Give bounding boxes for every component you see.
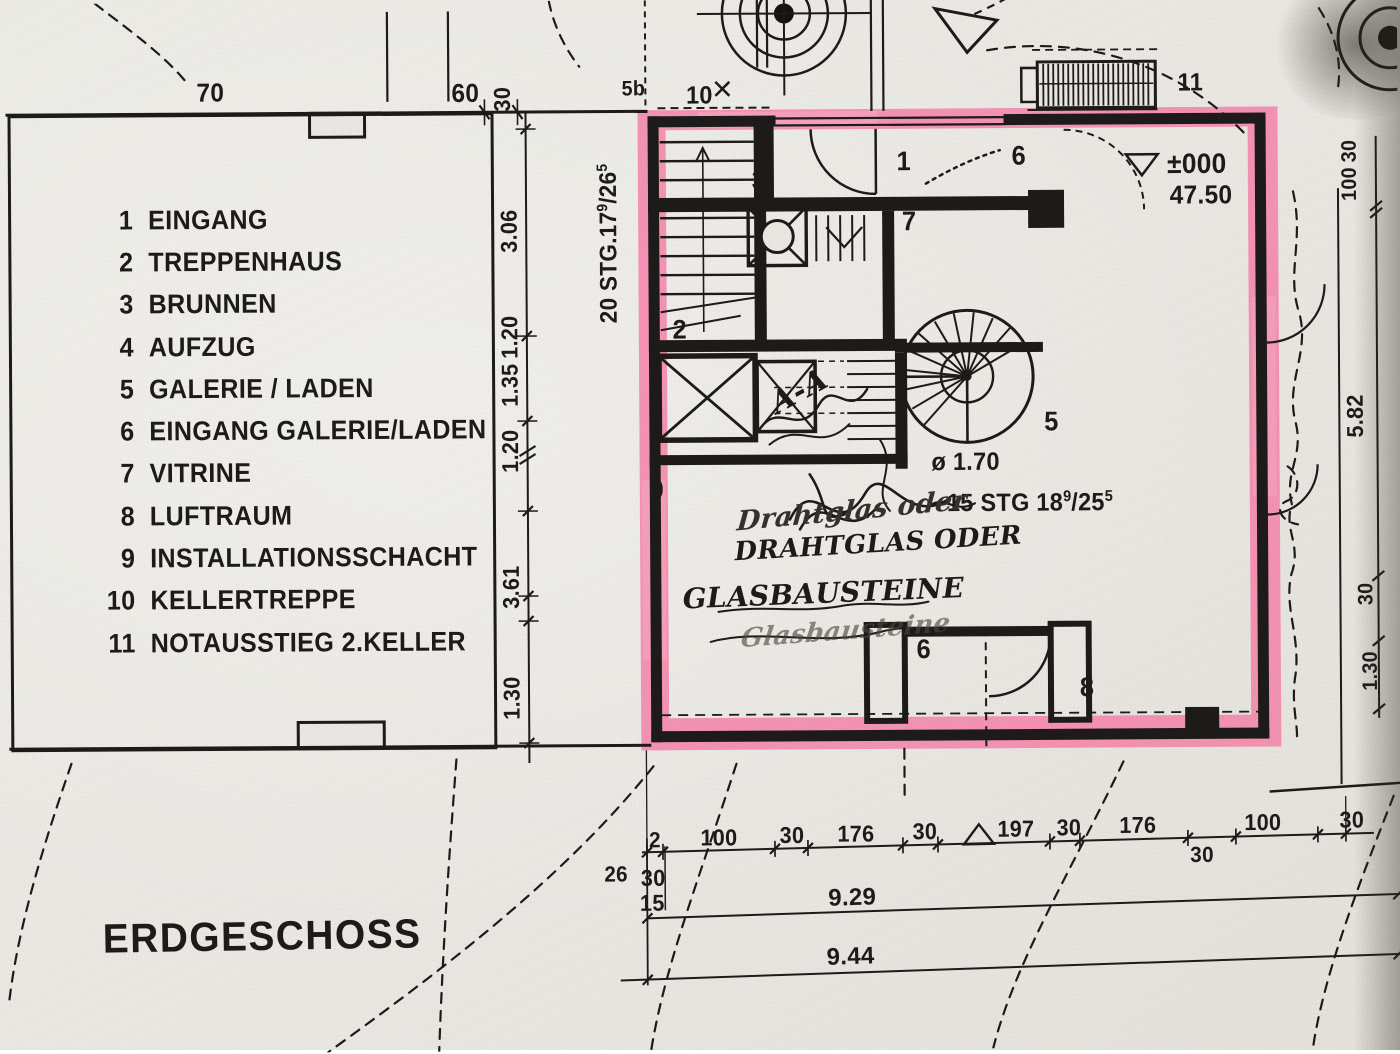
dim-bottom-100b: 100 (1244, 809, 1281, 836)
stair-winders (816, 215, 864, 261)
legend-item-number: 1 (94, 205, 133, 236)
level-marker-value: ±000 (1167, 148, 1227, 180)
legend-item-label: EINGANG GALERIE/LADEN (149, 414, 486, 447)
legend-item: 11 NOTAUSSTIEG 2.KELLER (97, 620, 488, 665)
room-label-3: 3 (752, 165, 767, 196)
dim-26: 26 (604, 861, 628, 887)
legend-item: 7 VITRINE (96, 451, 487, 496)
dim-top-60: 60 (451, 78, 479, 109)
legend-item-label: VITRINE (150, 458, 252, 490)
legend-item-number: 7 (96, 459, 135, 490)
dim-left-135: 1.35 (497, 363, 524, 406)
legend-item-number: 5 (95, 374, 134, 405)
dim-total-929: 9.29 (828, 883, 877, 912)
dim-15: 15 (640, 890, 665, 917)
legend-item-label: NOTAUSSTIEG 2.KELLER (151, 626, 466, 659)
level-marker-elevation: 47.50 (1170, 179, 1233, 210)
dim-top-30: 30 (489, 87, 516, 112)
survey-point-icon (696, 0, 871, 96)
dim-bottom-30a: 30 (780, 822, 805, 849)
page-title: ERDGESCHOSS (102, 910, 421, 962)
dim-total-944: 9.44 (826, 942, 875, 971)
dim-bottom-2: 2 (649, 827, 661, 853)
luftraum-dashed-line (661, 712, 1265, 716)
room-label-2: 2 (673, 315, 688, 346)
entrance-door-swing (811, 129, 876, 194)
legend-item-number: 4 (95, 332, 134, 363)
scan-edge-shadow (1354, 0, 1400, 1050)
dim-left-120a: 1.20 (496, 315, 523, 358)
scanned-floor-plan-sheet: 1 EINGANG 2 TREPPENHAUS 3 BRUNNEN 4 AUFZ… (0, 0, 1400, 1050)
room-label-1: 1 (896, 146, 911, 177)
legend-item: 2 TREPPENHAUS (94, 240, 485, 285)
room-label-11: 11 (1178, 68, 1204, 97)
main-staircase (660, 142, 755, 333)
dim-left-130: 1.30 (498, 676, 525, 719)
drawing-sheet: 1 EINGANG 2 TREPPENHAUS 3 BRUNNEN 4 AUFZ… (0, 0, 1400, 1054)
bottom-dimension-chains (619, 746, 1400, 986)
legend-item-number: 2 (94, 247, 133, 278)
dim-bottom-176b: 176 (1119, 812, 1156, 839)
legend-item: 6 EINGANG GALERIE/LADEN (95, 409, 486, 454)
stair-note-left: 20 STG.179/265 (595, 164, 624, 324)
legend-item-label: GALERIE / LADEN (149, 373, 374, 405)
dim-bottom-176a: 176 (837, 820, 874, 847)
spiral-stair-note: 15 STG 189/255 (947, 488, 1113, 518)
dim-left-120b: 1.20 (497, 429, 524, 472)
dim-top-70: 70 (196, 77, 224, 108)
legend-item-label: KELLERTREPPE (150, 584, 356, 616)
legend-item: 4 AUFZUG (95, 324, 486, 369)
legend-item-label: AUFZUG (149, 331, 256, 363)
room-label-6-top: 6 (1011, 141, 1026, 172)
dim-bottom-30-sub: 30 (1190, 842, 1214, 868)
legend-item: 1 EINGANG (94, 197, 485, 242)
legend-item-number: 11 (97, 628, 136, 659)
legend-item: 9 INSTALLATIONSSCHACHT (96, 536, 487, 581)
room-label-5: 5 (1044, 406, 1059, 437)
legend-item: 10 KELLERTREPPE (96, 578, 487, 623)
room-label-7: 7 (902, 206, 917, 237)
legend-item-number: 6 (95, 417, 134, 448)
legend-item-number: 3 (95, 290, 134, 321)
dim-left-361: 3.61 (498, 565, 525, 608)
dim-bottom-197: 197 (997, 815, 1034, 842)
room-label-8: 8 (1080, 672, 1095, 703)
legend-item-label: BRUNNEN (148, 289, 276, 321)
legend-item-number: 9 (96, 543, 135, 574)
survey-triangle-icon (935, 8, 997, 52)
legend-item-label: INSTALLATIONSSCHACHT (150, 541, 478, 574)
legend-list: 1 EINGANG 2 TREPPENHAUS 3 BRUNNEN 4 AUFZ… (94, 197, 517, 665)
legend-item-number: 10 (96, 586, 135, 617)
dim-left-306: 3.06 (496, 209, 523, 252)
legend-item-label: LUFTRAUM (150, 500, 293, 532)
legend-item-label: TREPPENHAUS (148, 246, 342, 278)
spiral-staircase (901, 310, 1034, 443)
legend-item-number: 8 (96, 501, 135, 532)
legend-item: 3 BRUNNEN (95, 282, 486, 327)
dim-30-stack: 30 (641, 865, 666, 892)
legend-item-label: EINGANG (148, 204, 268, 236)
x-marker (715, 82, 729, 96)
legend-item: 5 GALERIE / LADEN (95, 366, 486, 411)
dim-bottom-100a: 100 (700, 824, 737, 851)
room-label-10: 10 (686, 81, 713, 110)
legend-item: 8 LUFTRAUM (96, 493, 487, 538)
room-label-9: 9 (649, 475, 664, 506)
interior-walls (648, 124, 1067, 639)
emergency-exit-grating (1021, 49, 1157, 110)
dim-bottom-30b: 30 (912, 818, 937, 845)
dim-bottom-30c: 30 (1056, 814, 1081, 841)
spiral-diameter-note: ø 1.70 (931, 448, 1000, 477)
dim-top-5b: 5b (621, 77, 645, 101)
gallery-door-swing (1064, 129, 1144, 209)
